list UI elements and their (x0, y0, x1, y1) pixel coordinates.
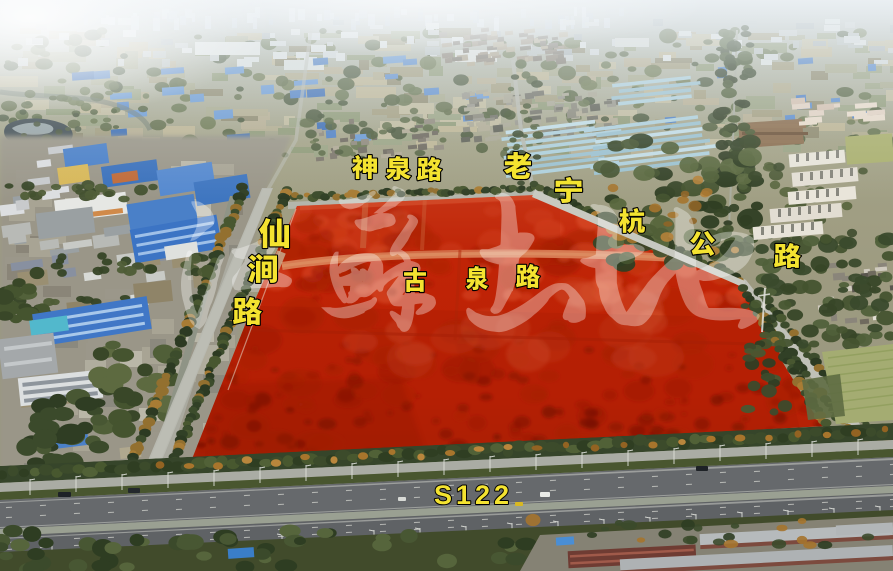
svg-text:S122: S122 (434, 480, 513, 510)
